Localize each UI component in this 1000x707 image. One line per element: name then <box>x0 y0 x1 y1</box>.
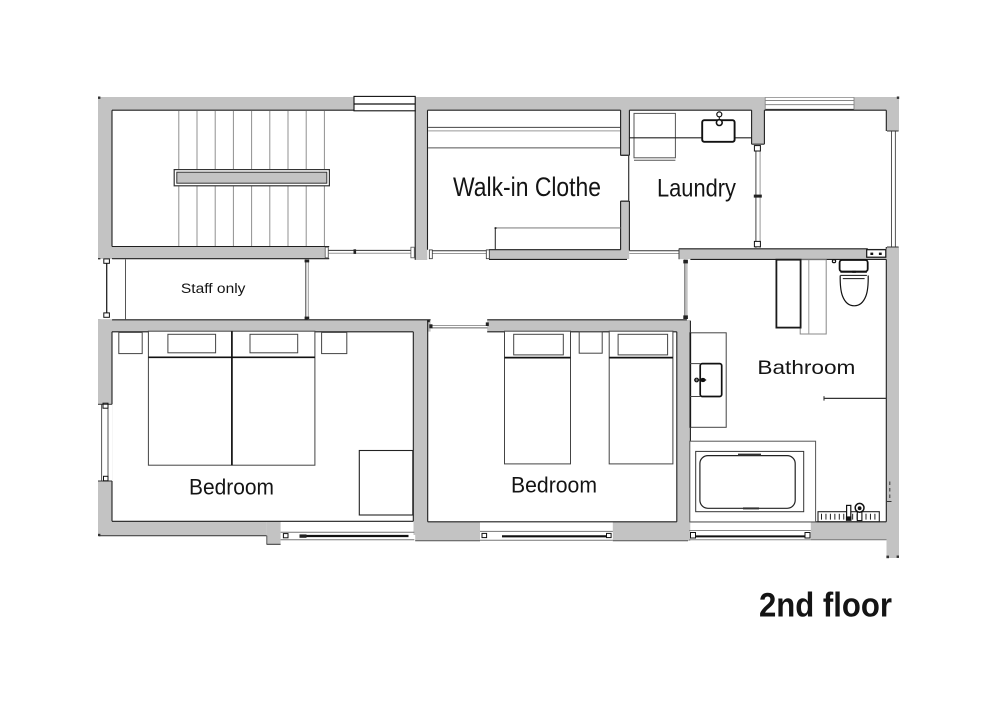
svg-text:Bedroom: Bedroom <box>511 473 597 498</box>
svg-text:Bathroom: Bathroom <box>757 357 855 379</box>
svg-text:Walk-in Clothe: Walk-in Clothe <box>453 172 601 202</box>
svg-text:Staff only: Staff only <box>181 281 246 296</box>
svg-text:2nd floor: 2nd floor <box>759 587 892 625</box>
svg-text:Bedroom: Bedroom <box>189 475 274 500</box>
svg-text:Laundry: Laundry <box>657 175 736 203</box>
